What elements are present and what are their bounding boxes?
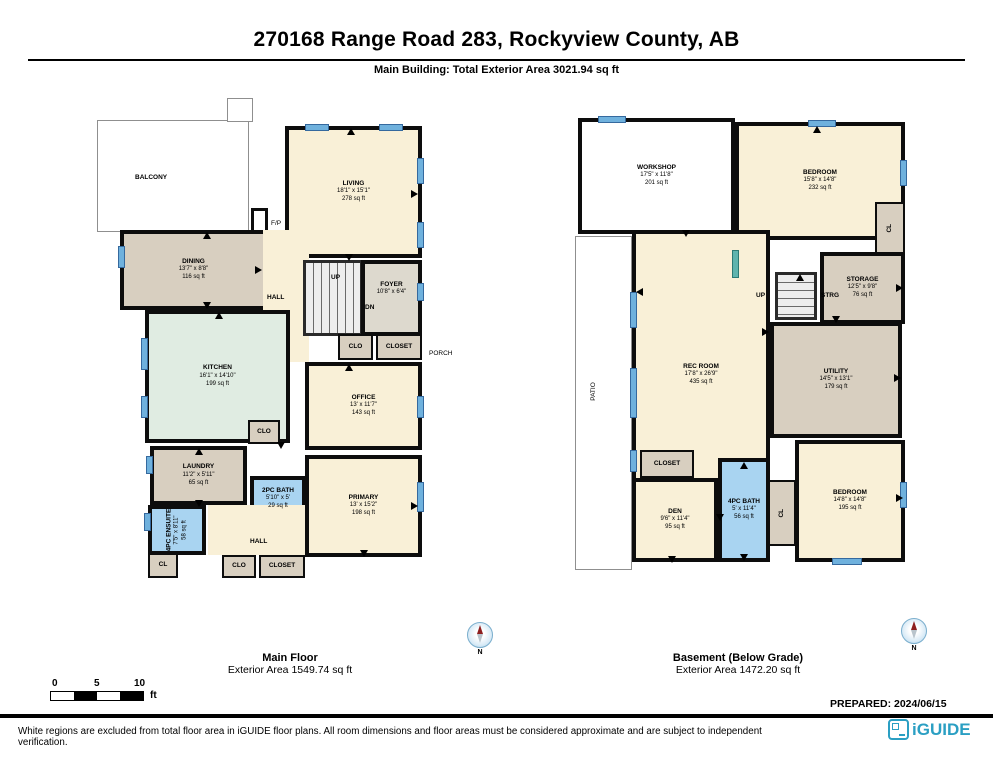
room-area: 198 sq ft [349, 510, 379, 518]
room-name: BEDROOM [803, 169, 837, 177]
compass-icon: N [899, 618, 929, 652]
room-area: 116 sq ft [179, 274, 209, 282]
room-area: 95 sq ft [660, 524, 689, 532]
room-4pc-bath-text: 4PC BATH 5' x 11'4" 56 sq ft [728, 498, 760, 522]
door-arrow-icon [682, 230, 690, 237]
scale-segment [51, 692, 74, 700]
door-arrow-icon [896, 494, 903, 502]
iguide-logo: iGUIDE [888, 719, 971, 740]
room-living-text: LIVING 18'1" x 15'1" 278 sq ft [337, 180, 370, 204]
room-utility-text: UTILITY 14'5" x 13'1" 179 sq ft [820, 368, 853, 392]
room-area: 143 sq ft [350, 410, 377, 418]
door-arrow-icon [716, 514, 724, 521]
room-clo-hall2: CLO [222, 555, 256, 578]
room-closet-basement: CLOSET [640, 450, 694, 478]
room-foyer: FOYER 10'8" x 6'4" [361, 260, 422, 336]
window-icon [141, 338, 148, 370]
room-name: LIVING [337, 180, 370, 188]
window-icon [732, 250, 739, 278]
room-dims: 5' x 11'4" [728, 506, 760, 514]
room-bedroom-2-text: BEDROOM 14'8" x 14'8" 195 sq ft [833, 489, 867, 513]
door-arrow-icon [796, 274, 804, 281]
compass-dial [901, 618, 927, 644]
room-dims: 11'2" x 5'11" [182, 472, 214, 480]
door-arrow-icon [636, 288, 643, 296]
window-icon [832, 558, 862, 565]
room-name: PRIMARY [349, 494, 379, 502]
room-den-text: DEN 9'6" x 11'4" 95 sq ft [660, 508, 689, 532]
scale-unit-label: ft [150, 690, 157, 701]
fireplace-label: F/P [271, 220, 281, 227]
scale-bar-box [50, 691, 144, 701]
room-dims: 17'8" x 26'9" [683, 371, 719, 379]
room-name: CLO [349, 343, 363, 351]
door-arrow-icon [896, 284, 903, 292]
door-arrow-icon [215, 312, 223, 319]
room-dims: 14'5" x 13'1" [820, 376, 853, 384]
room-name: 2PC BATH [262, 487, 294, 495]
room-dims: 17'5" x 11'8" [637, 172, 676, 180]
disclaimer-text: White regions are excluded from total fl… [18, 726, 778, 748]
room-dining-text: DINING 13'7" x 8'8" 116 sq ft [179, 258, 209, 282]
room-name: DEN [660, 508, 689, 516]
scale-tick-5: 5 [94, 678, 100, 689]
hall2-area [208, 505, 305, 555]
room-area: 179 sq ft [820, 384, 853, 392]
stairs-main [303, 260, 363, 336]
footer-divider [0, 714, 993, 718]
room-dims: 10'8" x 6'4" [377, 289, 407, 297]
room-name: OFFICE [350, 394, 377, 402]
iguide-logo-text: iGUIDE [912, 720, 971, 740]
room-dims: 9'6" x 11'4" [660, 516, 689, 524]
stairs-up-label: UP [331, 274, 340, 281]
page-title: 270168 Range Road 283, Rockyview County,… [0, 28, 993, 52]
window-icon [630, 368, 637, 418]
compass-dial [467, 622, 493, 648]
window-icon [144, 513, 151, 531]
scale-segment [74, 692, 97, 700]
iguide-logo-icon [888, 719, 909, 740]
door-arrow-icon [195, 448, 203, 455]
porch-label: PORCH [429, 350, 452, 357]
door-arrow-icon [360, 550, 368, 557]
room-name: CLO [232, 562, 246, 570]
room-kitchen-text: KITCHEN 16'1" x 14'10" 199 sq ft [199, 364, 235, 388]
room-dims: 5'10" x 5' [262, 495, 294, 503]
room-4pc-ensuite: 4PC ENSUITE 7'5" x 8'11" 58 sq ft [148, 505, 206, 555]
room-area: 56 sq ft [728, 514, 760, 522]
door-arrow-icon [255, 266, 262, 274]
door-arrow-icon [894, 374, 901, 382]
room-clo-hall: CLO [248, 420, 280, 444]
window-icon [598, 116, 626, 123]
room-area: 232 sq ft [803, 185, 837, 193]
door-arrow-icon [740, 462, 748, 469]
stairs-up-label: UP [756, 292, 765, 299]
door-arrow-icon [195, 500, 203, 507]
main-floor-plan: BALCONY LIVING 18'1" x 15'1" 278 sq ft F… [95, 98, 460, 583]
room-cl-1: CL [875, 202, 905, 254]
compass-icon: N [465, 622, 495, 656]
patio-label: PATIO [590, 382, 597, 401]
compass-north-label: N [899, 645, 929, 652]
room-name: FOYER [377, 281, 407, 289]
door-arrow-icon [668, 556, 676, 563]
room-clo-foyer: CLO [338, 334, 373, 360]
floorplan-sheet: { "page": { "title": "270168 Range Road … [0, 0, 993, 768]
window-icon [379, 124, 403, 131]
window-icon [630, 450, 637, 472]
window-icon [417, 482, 424, 512]
room-office: OFFICE 13' x 11'7" 143 sq ft [305, 362, 422, 450]
door-arrow-icon [345, 254, 353, 261]
room-office-text: OFFICE 13' x 11'7" 143 sq ft [350, 394, 377, 418]
stairs-dn-label: DN [365, 304, 374, 311]
room-closet-foyer: CLOSET [376, 334, 422, 360]
room-name: 4PC ENSUITE [165, 509, 173, 552]
scale-ticks: 0 5 10 [50, 678, 170, 690]
door-arrow-icon [411, 502, 418, 510]
room-area: 435 sq ft [683, 379, 719, 387]
hall2-label: HALL [250, 538, 267, 545]
room-name: KITCHEN [199, 364, 235, 372]
room-area: 201 sq ft [637, 180, 676, 188]
room-name: CLOSET [269, 562, 295, 570]
compass-north-label: N [465, 649, 495, 656]
logo-mark-detail [899, 734, 905, 736]
scale-segment [97, 692, 120, 700]
room-name: LAUNDRY [182, 463, 214, 471]
room-name: BEDROOM [833, 489, 867, 497]
room-den: DEN 9'6" x 11'4" 95 sq ft [632, 478, 718, 562]
door-arrow-icon [203, 302, 211, 309]
strg-label: STRG [821, 292, 839, 299]
room-name: CL [778, 509, 786, 518]
window-icon [417, 222, 424, 248]
room-area: 58 sq ft [181, 509, 189, 552]
room-dims: 7'5" x 8'11" [173, 509, 181, 552]
scale-bar: 0 5 10 ft [50, 678, 170, 701]
room-rec-room-text: REC ROOM 17'8" x 26'9" 435 sq ft [683, 363, 719, 387]
main-floor-caption: Main Floor Exterior Area 1549.74 sq ft [160, 652, 420, 676]
patio-area [575, 236, 632, 570]
room-dims: 12'5" x 9'8" [846, 284, 878, 292]
room-name: WORKSHOP [637, 164, 676, 172]
room-name: CLOSET [654, 460, 680, 468]
compass-needle-north [911, 621, 917, 630]
room-primary: PRIMARY 13' x 15'2" 198 sq ft [305, 455, 422, 557]
room-closet-hall2: CLOSET [259, 555, 305, 578]
scale-tick-10: 10 [134, 678, 145, 689]
door-arrow-icon [762, 328, 769, 336]
room-bedroom-1-text: BEDROOM 15'8" x 14'8" 232 sq ft [803, 169, 837, 193]
title-divider [28, 59, 965, 61]
room-workshop: WORKSHOP 17'5" x 11'8" 201 sq ft [578, 118, 735, 234]
room-area: 199 sq ft [199, 381, 235, 389]
room-dims: 18'1" x 15'1" [337, 188, 370, 196]
room-name: UTILITY [820, 368, 853, 376]
room-balcony [97, 120, 249, 232]
basement-plan: WORKSHOP 17'5" x 11'8" 201 sq ft BEDROOM… [570, 112, 915, 574]
room-name: CLOSET [386, 343, 412, 351]
room-utility: UTILITY 14'5" x 13'1" 179 sq ft [770, 322, 902, 438]
door-arrow-icon [277, 442, 285, 449]
room-area: 278 sq ft [337, 196, 370, 204]
scale-tick-0: 0 [52, 678, 58, 689]
room-name: 4PC BATH [728, 498, 760, 506]
door-arrow-icon [411, 190, 418, 198]
door-arrow-icon [345, 364, 353, 371]
room-dims: 13'7" x 8'8" [179, 266, 209, 274]
chimney-outline [227, 98, 253, 122]
room-area: 76 sq ft [846, 292, 878, 300]
room-primary-text: PRIMARY 13' x 15'2" 198 sq ft [349, 494, 379, 518]
room-dims: 13' x 11'7" [350, 402, 377, 410]
door-arrow-icon [347, 128, 355, 135]
logo-mark-detail [892, 723, 899, 730]
room-area: 65 sq ft [182, 480, 214, 488]
floor-area: Exterior Area 1472.20 sq ft [608, 664, 868, 676]
compass-needle-south [911, 630, 917, 639]
window-icon [146, 456, 153, 474]
room-dims: 15'8" x 14'8" [803, 177, 837, 185]
room-storage-text: STORAGE 12'5" x 9'8" 76 sq ft [846, 276, 878, 300]
prepared-date: PREPARED: 2024/06/15 [830, 698, 947, 710]
hall-label: HALL [267, 294, 284, 301]
window-icon [417, 396, 424, 418]
door-arrow-icon [813, 126, 821, 133]
window-icon [118, 246, 125, 268]
room-laundry-text: LAUNDRY 11'2" x 5'11" 65 sq ft [182, 463, 214, 487]
room-name: CL [159, 561, 168, 569]
room-dims: 13' x 15'2" [349, 502, 379, 510]
room-workshop-text: WORKSHOP 17'5" x 11'8" 201 sq ft [637, 164, 676, 188]
room-foyer-text: FOYER 10'8" x 6'4" [377, 281, 407, 297]
door-arrow-icon [203, 232, 211, 239]
room-area: 195 sq ft [833, 505, 867, 513]
window-icon [417, 283, 424, 301]
room-2pc-bath-text: 2PC BATH 5'10" x 5' 29 sq ft [262, 487, 294, 511]
window-icon [900, 160, 907, 186]
room-name: CL [886, 224, 894, 233]
floor-area: Exterior Area 1549.74 sq ft [160, 664, 420, 676]
room-area: 29 sq ft [262, 503, 294, 511]
room-dining: DINING 13'7" x 8'8" 116 sq ft [120, 230, 267, 310]
room-dims: 14'8" x 14'8" [833, 497, 867, 505]
room-dims: 16'1" x 14'10" [199, 373, 235, 381]
room-cl: CL [148, 553, 178, 578]
basement-caption: Basement (Below Grade) Exterior Area 147… [608, 652, 868, 676]
window-icon [141, 396, 148, 418]
window-icon [417, 158, 424, 184]
window-icon [305, 124, 329, 131]
room-bedroom-2: BEDROOM 14'8" x 14'8" 195 sq ft [795, 440, 905, 562]
door-arrow-icon [740, 554, 748, 561]
compass-needle-north [477, 625, 483, 634]
scale-segment [120, 692, 143, 700]
room-balcony-label: BALCONY [135, 174, 167, 181]
room-4pc-bath: 4PC BATH 5' x 11'4" 56 sq ft [718, 458, 770, 562]
page-subtitle: Main Building: Total Exterior Area 3021.… [0, 64, 993, 76]
door-arrow-icon [832, 316, 840, 323]
floor-name: Main Floor [160, 652, 420, 664]
window-icon [630, 292, 637, 328]
room-4pc-ensuite-text: 4PC ENSUITE 7'5" x 8'11" 58 sq ft [165, 509, 189, 552]
room-cl-2: CL [768, 480, 796, 546]
room-name: DINING [179, 258, 209, 266]
compass-needle-south [477, 634, 483, 643]
room-name: REC ROOM [683, 363, 719, 371]
room-name: STORAGE [846, 276, 878, 284]
floor-name: Basement (Below Grade) [608, 652, 868, 664]
room-name: CLO [257, 428, 271, 436]
room-storage: STORAGE 12'5" x 9'8" 76 sq ft [820, 252, 905, 324]
